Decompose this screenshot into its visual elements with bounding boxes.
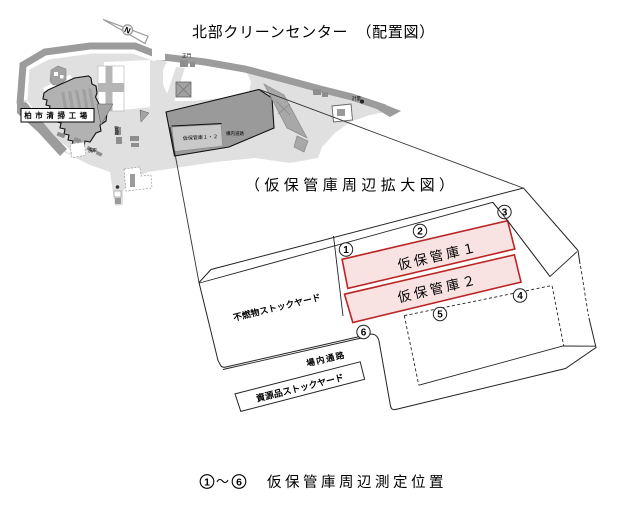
- svg-text:1: 1: [343, 245, 349, 256]
- svg-text:柏市清掃工場: 柏市清掃工場: [24, 110, 91, 120]
- svg-text:5: 5: [437, 310, 443, 321]
- svg-text:6: 6: [236, 476, 242, 488]
- svg-text:（仮保管庫周辺拡大図）: （仮保管庫周辺拡大図）: [245, 177, 458, 194]
- svg-text:6: 6: [361, 328, 367, 339]
- svg-text:管理: 管理: [114, 125, 120, 136]
- svg-text:仮保管庫周辺測定位置: 仮保管庫周辺測定位置: [267, 474, 447, 491]
- svg-text:場内通路: 場内通路: [305, 350, 346, 369]
- svg-text:不燃物ストックヤード: 不燃物ストックヤード: [232, 291, 322, 323]
- svg-text:4: 4: [517, 291, 523, 302]
- svg-text:～: ～: [216, 474, 229, 489]
- svg-text:2: 2: [417, 227, 423, 238]
- svg-text:計量: 計量: [352, 95, 361, 102]
- svg-text:1: 1: [204, 476, 210, 488]
- svg-text:北部クリーンセンター （配置図）: 北部クリーンセンター （配置図）: [192, 24, 435, 41]
- svg-text:構内道路: 構内道路: [226, 130, 244, 137]
- svg-text:洗車: 洗車: [88, 147, 97, 154]
